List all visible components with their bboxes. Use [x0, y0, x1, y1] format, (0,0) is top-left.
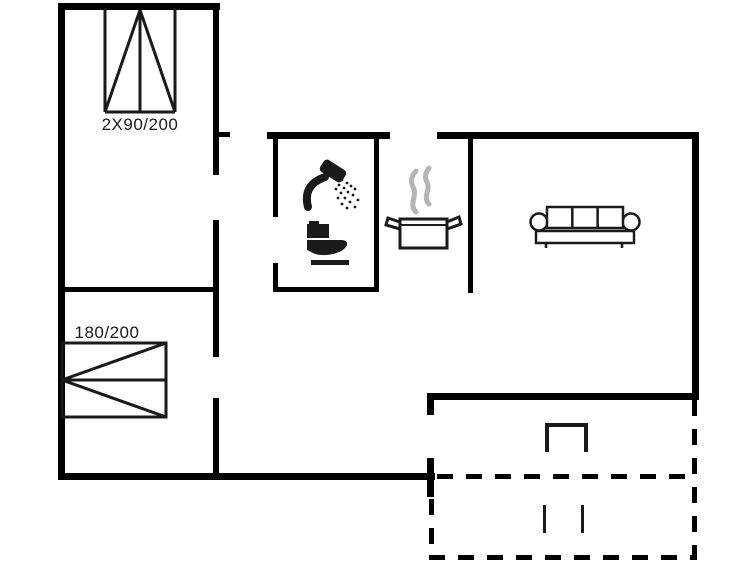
- wall-terrace-door-stub-bottom: [427, 458, 434, 497]
- wall-interior-vertical-upper: [213, 8, 219, 175]
- terrace-dashed-right: [692, 400, 697, 558]
- shower-spray-dots: [335, 179, 360, 210]
- toilet-icon: [303, 220, 353, 270]
- wall-interior-vertical-lower: [213, 398, 219, 475]
- wall-bathroom-left-upper: [273, 139, 278, 217]
- wall-bathroom-bottom: [273, 287, 379, 292]
- cooking-pot-icon: [383, 164, 463, 254]
- terrace-step-tick-right: [581, 505, 584, 533]
- wall-top-bathroom: [267, 132, 390, 139]
- wall-terrace-door-stub-top: [427, 400, 434, 415]
- wall-top-livingroom: [437, 132, 699, 139]
- terrace-dashed-left: [429, 499, 434, 555]
- double-door-window-symbol: [101, 8, 179, 114]
- wall-bedroom-divider: [63, 287, 215, 292]
- sofa-icon: [524, 200, 646, 252]
- steam-icon: [412, 168, 429, 212]
- terrace-dashed-bottom: [429, 555, 697, 560]
- wall-bottom: [58, 473, 435, 480]
- wall-kitchen-divider: [468, 139, 473, 293]
- wall-bathroom-right: [374, 139, 379, 292]
- shower-icon: [298, 160, 362, 216]
- wall-right: [692, 132, 699, 400]
- terrace-steps-symbol: [545, 423, 588, 452]
- terrace-step-tick-left: [543, 505, 546, 533]
- window-size-label: 2X90/200: [95, 116, 185, 133]
- wall-junction-tick: [219, 132, 230, 137]
- floor-plan: 2X90/200 180/200: [0, 0, 755, 566]
- wall-bottom-livingroom: [427, 393, 699, 400]
- bed-size-label: 180/200: [68, 324, 146, 341]
- terrace-dashed-top: [437, 474, 695, 479]
- double-bed-symbol: [60, 341, 170, 419]
